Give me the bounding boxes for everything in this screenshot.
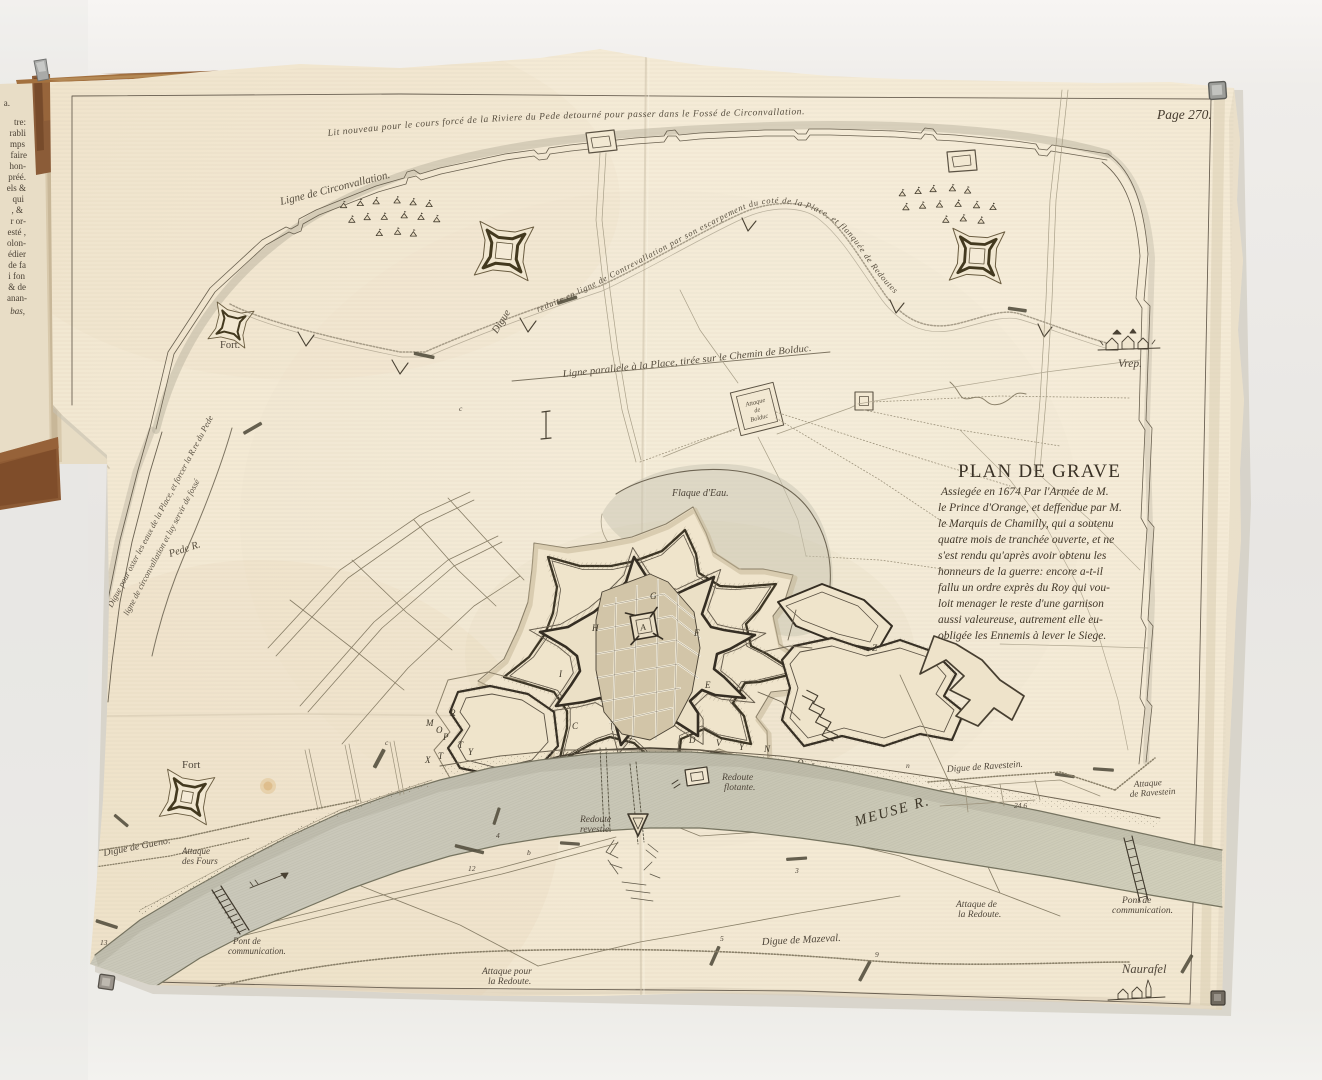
svg-text:esté ,: esté , <box>8 227 27 237</box>
svg-text:rabli: rabli <box>10 128 27 138</box>
svg-text:hon-: hon- <box>10 161 27 171</box>
svg-text:E: E <box>704 680 711 690</box>
svg-text:Flaque d'Eau.: Flaque d'Eau. <box>671 488 729 499</box>
svg-text:Vrep.: Vrep. <box>1118 358 1142 370</box>
svg-text:Fort: Fort <box>182 759 200 771</box>
svg-text:quatre mois de tranchée ouvert: quatre mois de tranchée ouverte, et ne <box>938 534 1114 546</box>
svg-text:tre:: tre: <box>14 117 26 127</box>
svg-text:n: n <box>906 761 910 770</box>
svg-text:C: C <box>572 721 579 731</box>
svg-text:Fort.: Fort. <box>220 340 240 351</box>
svg-text:aussi valeureuse, autrement el: aussi valeureuse, autrement elle eu- <box>938 614 1103 626</box>
svg-text:Attaque: Attaque <box>181 846 210 856</box>
svg-text:b: b <box>527 848 531 857</box>
svg-text:flotante.: flotante. <box>724 782 755 793</box>
svg-text:anan-: anan- <box>7 293 27 303</box>
svg-text:le Prince d'Orange, et deffend: le Prince d'Orange, et deffendue par M. <box>938 502 1122 514</box>
svg-text:Page 270.: Page 270. <box>1156 107 1212 122</box>
svg-text:communication.: communication. <box>228 946 286 956</box>
svg-text:s'est rendu qu'après avoir obt: s'est rendu qu'après avoir obtenu les <box>938 550 1107 562</box>
svg-text:mps: mps <box>10 139 26 149</box>
svg-text:PLAN DE GRAVE: PLAN DE GRAVE <box>958 461 1121 482</box>
svg-text:la Redoute.: la Redoute. <box>488 977 531 987</box>
svg-text:Assiegée en 1674 Par l'Armée d: Assiegée en 1674 Par l'Armée de M. <box>940 486 1109 498</box>
svg-text:9: 9 <box>875 950 879 959</box>
svg-text:de fa: de fa <box>8 260 26 270</box>
svg-text:des Fours: des Fours <box>182 856 218 866</box>
svg-text:F: F <box>693 628 700 638</box>
svg-text:Attaque de: Attaque de <box>955 900 997 910</box>
svg-text:i fon: i fon <box>8 271 25 281</box>
svg-text:le Marquis de Chamilly, qui a: le Marquis de Chamilly, qui a soutenu <box>938 518 1114 530</box>
svg-text:12: 12 <box>468 864 476 873</box>
svg-text:a.: a. <box>4 98 10 108</box>
svg-text:Pont de: Pont de <box>232 936 261 946</box>
svg-text:Naurafel: Naurafel <box>1121 962 1167 976</box>
svg-text:24 6: 24 6 <box>1014 801 1027 810</box>
svg-text:faire: faire <box>11 150 27 160</box>
svg-text:Redoute: Redoute <box>579 815 611 825</box>
svg-text:préé.: préé. <box>8 172 26 182</box>
svg-text:qui: qui <box>12 194 24 204</box>
svg-text:loit menager le reste d'une ga: loit menager le reste d'une garnison <box>938 598 1104 610</box>
svg-text:D: D <box>688 735 696 745</box>
svg-text:G: G <box>650 591 657 601</box>
svg-text:Attaque pour: Attaque pour <box>481 967 532 977</box>
svg-text:& de: & de <box>8 282 26 292</box>
svg-text:honneurs de la guerre: encore: honneurs de la guerre: encore a-t-il <box>938 566 1103 578</box>
svg-text:bas,: bas, <box>10 306 25 316</box>
svg-text:4: 4 <box>496 831 500 840</box>
svg-text:olon-: olon- <box>7 238 26 248</box>
svg-text:5: 5 <box>720 934 724 943</box>
svg-text:, &: , & <box>11 205 23 215</box>
svg-text:13: 13 <box>100 938 108 947</box>
svg-text:R: R <box>449 708 456 718</box>
svg-text:H: H <box>591 623 599 633</box>
svg-text:revestie.: revestie. <box>580 825 612 835</box>
svg-text:édier: édier <box>8 249 26 259</box>
svg-text:fallu un ordre exprès du Roy q: fallu un ordre exprès du Roy qui vou- <box>938 582 1110 594</box>
svg-text:r or-: r or- <box>10 216 26 226</box>
svg-text:la Redoute.: la Redoute. <box>958 910 1001 920</box>
svg-text:Redoute: Redoute <box>721 773 753 783</box>
svg-text:P: P <box>442 732 449 742</box>
svg-text:Pont de: Pont de <box>1121 896 1151 906</box>
svg-text:N: N <box>763 744 771 754</box>
svg-text:M: M <box>425 718 434 728</box>
svg-text:els &: els & <box>7 183 26 193</box>
svg-text:O: O <box>436 725 443 735</box>
svg-text:communication.: communication. <box>1112 906 1173 916</box>
svg-text:obligée les Ennemis à lever le: obligée les Ennemis à lever le Siege. <box>938 630 1106 642</box>
svg-text:X: X <box>424 755 431 765</box>
svg-text:3: 3 <box>794 866 799 875</box>
